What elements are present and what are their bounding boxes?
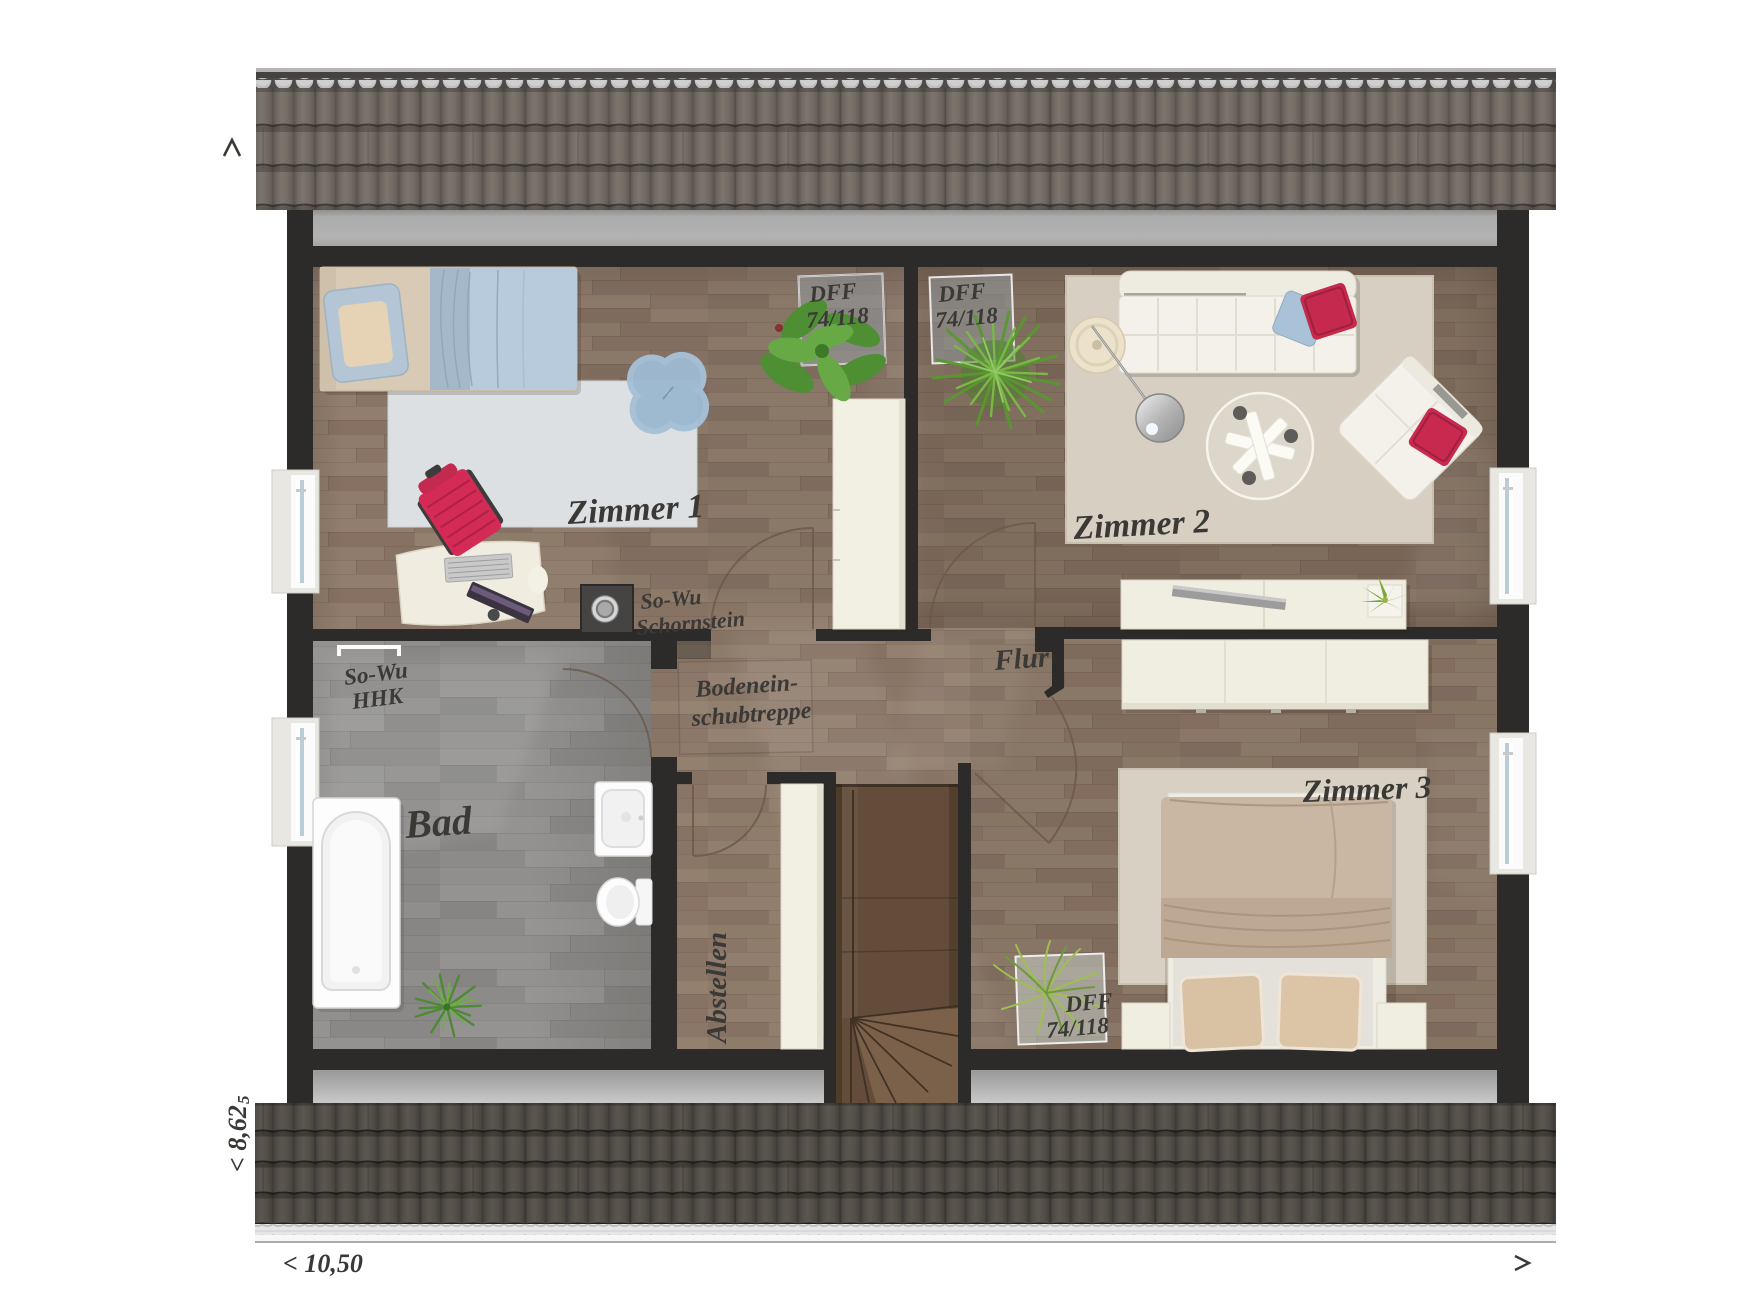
svg-text:Flur: Flur [992, 641, 1051, 677]
svg-text:5: 5 [234, 1095, 253, 1104]
svg-text:Bad: Bad [402, 797, 474, 847]
svg-text:< 8,62: < 8,62 [223, 1105, 252, 1172]
svg-text:Zimmer 1: Zimmer 1 [565, 488, 705, 532]
svg-text:DFF: DFF [936, 278, 986, 307]
svg-text:Abstellen: Abstellen [701, 932, 733, 1045]
svg-text:DFF: DFF [807, 278, 857, 307]
svg-text:Zimmer 3: Zimmer 3 [1301, 769, 1432, 810]
svg-text:Zimmer 2: Zimmer 2 [1071, 503, 1211, 547]
svg-text:< 10,50: < 10,50 [283, 1249, 363, 1278]
